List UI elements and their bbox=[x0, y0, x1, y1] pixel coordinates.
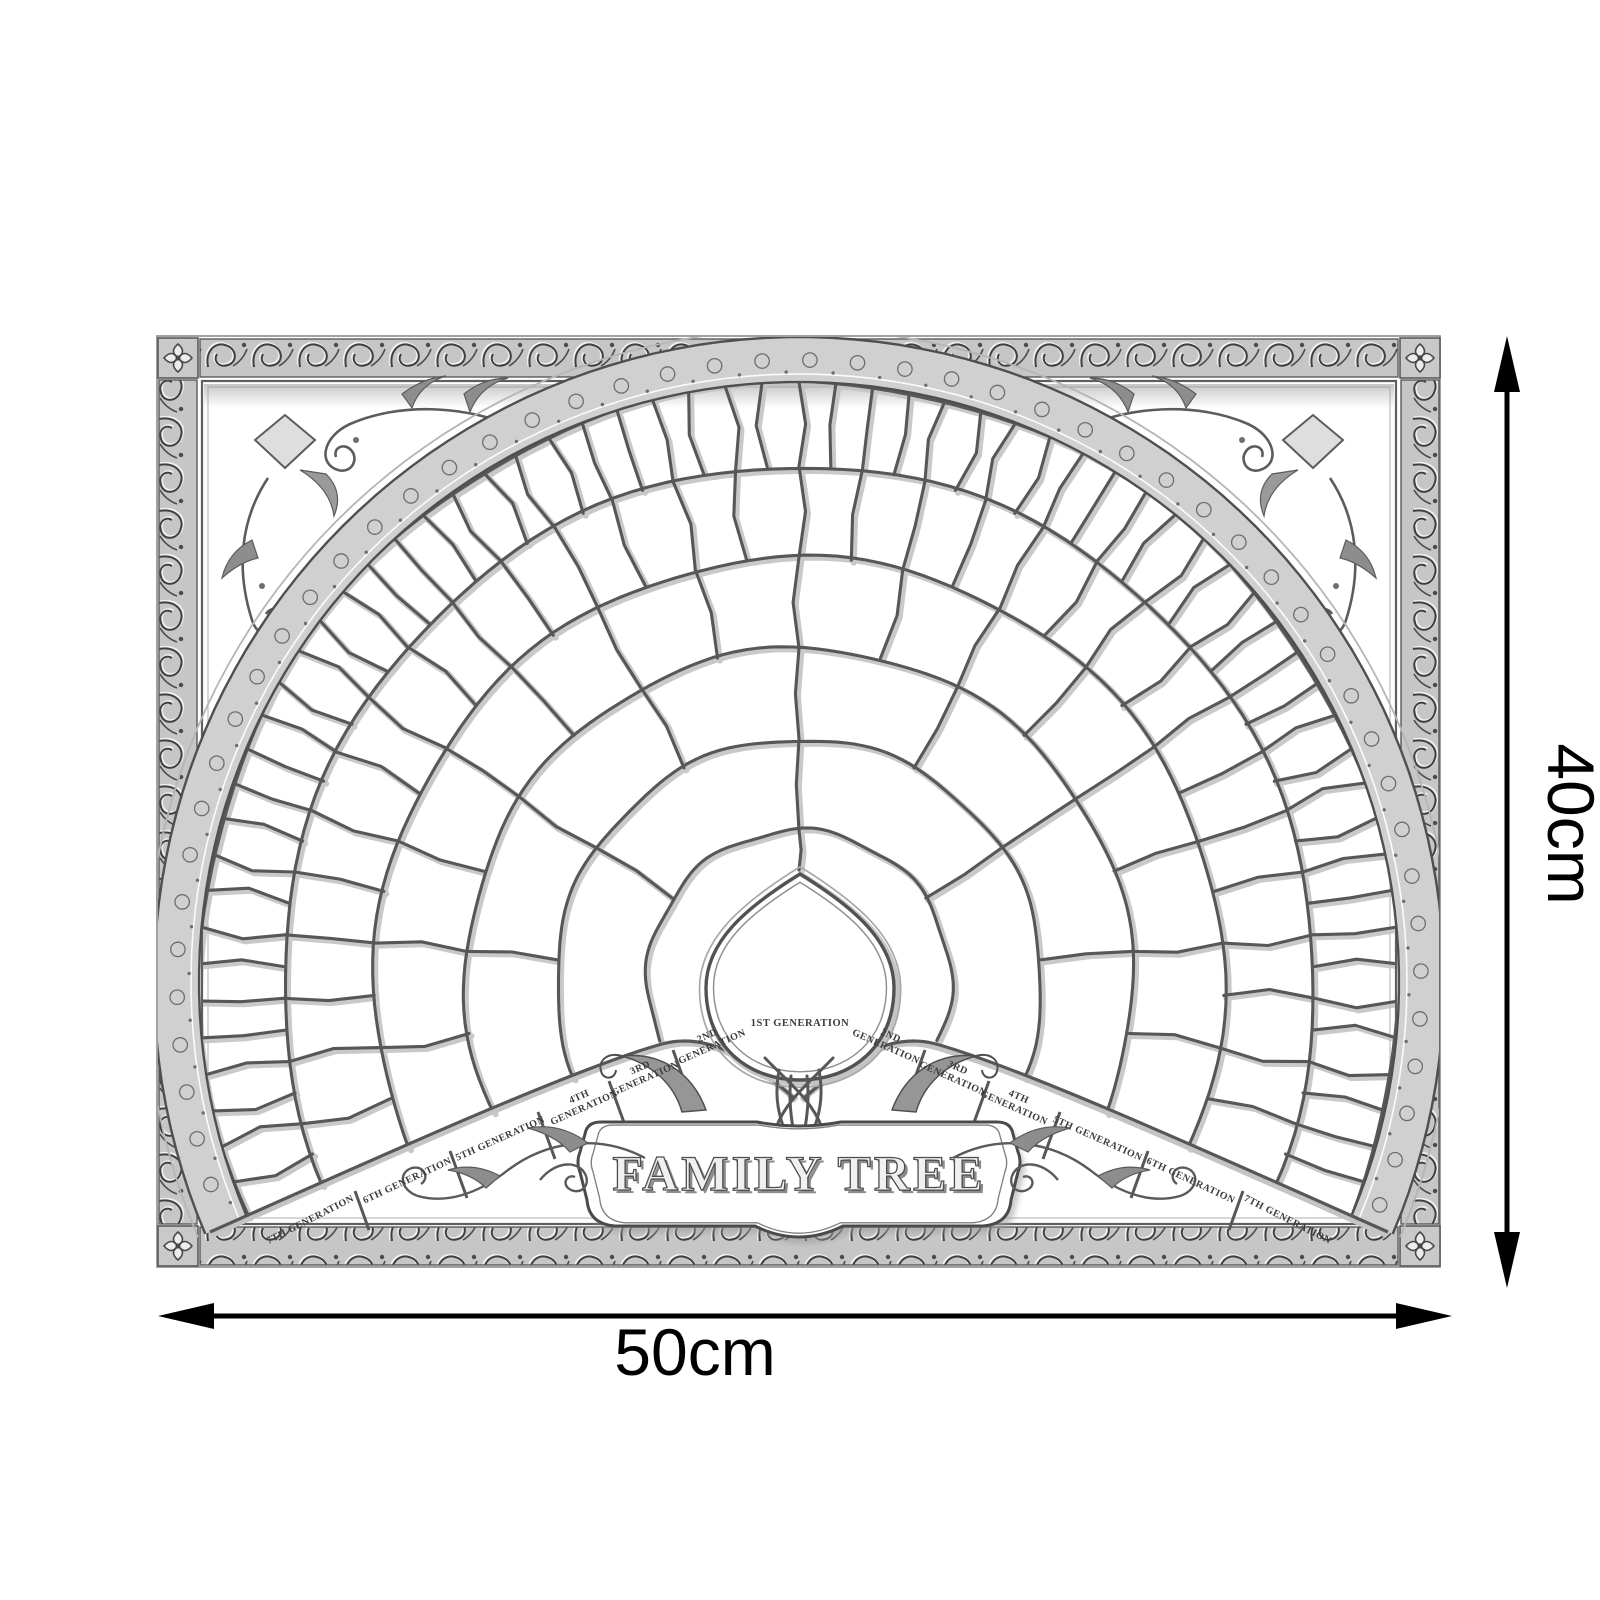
svg-text:FAMILY TREE: FAMILY TREE bbox=[612, 1145, 985, 1201]
arrow-left-icon bbox=[158, 1303, 214, 1329]
banner-title: FAMILY TREE FAMILY TREE bbox=[612, 1145, 988, 1204]
arrow-down-icon bbox=[1494, 1232, 1520, 1288]
family-tree-poster: FAMILY TREE FAMILY TREE 1ST GENERATION 2… bbox=[0, 0, 1600, 1600]
product-image: FAMILY TREE FAMILY TREE 1ST GENERATION 2… bbox=[0, 0, 1600, 1600]
arrow-up-icon bbox=[1494, 336, 1520, 392]
generation-label-1st: 1ST GENERATION bbox=[751, 1018, 850, 1029]
width-label: 50cm bbox=[614, 1315, 775, 1389]
height-dimension: 40cm bbox=[1494, 336, 1600, 1288]
arrow-right-icon bbox=[1396, 1303, 1452, 1329]
width-dimension: 50cm bbox=[158, 1303, 1452, 1389]
height-label: 40cm bbox=[1534, 743, 1600, 904]
